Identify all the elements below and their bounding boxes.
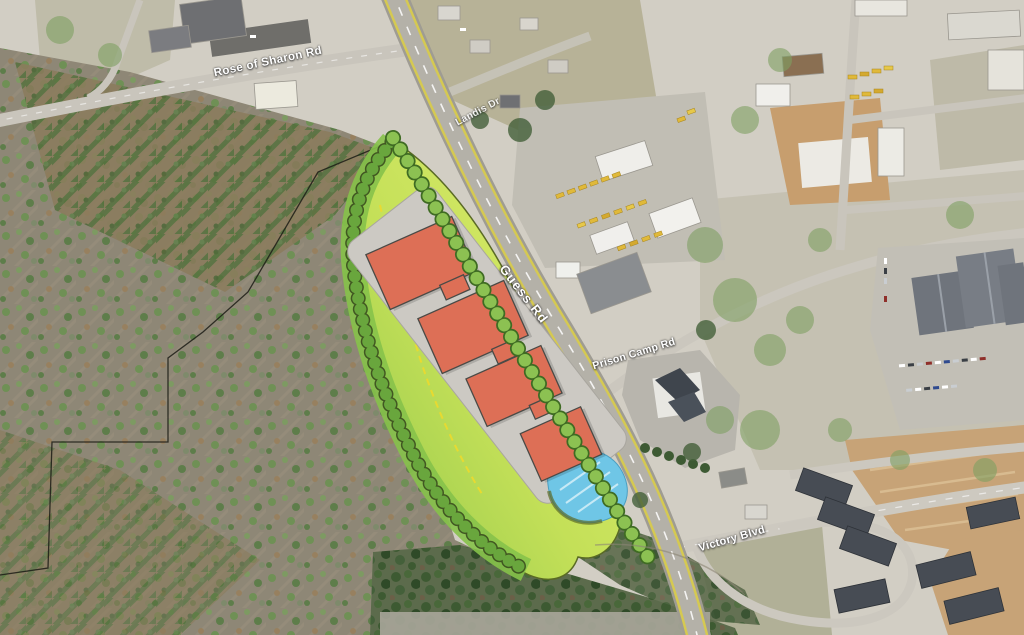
aerial-site-plan-map: Rose of Sharon Rd Landis Dr Guess Rd Pri…	[0, 0, 1024, 635]
field-strip	[380, 612, 710, 635]
map-canvas	[0, 0, 1024, 635]
